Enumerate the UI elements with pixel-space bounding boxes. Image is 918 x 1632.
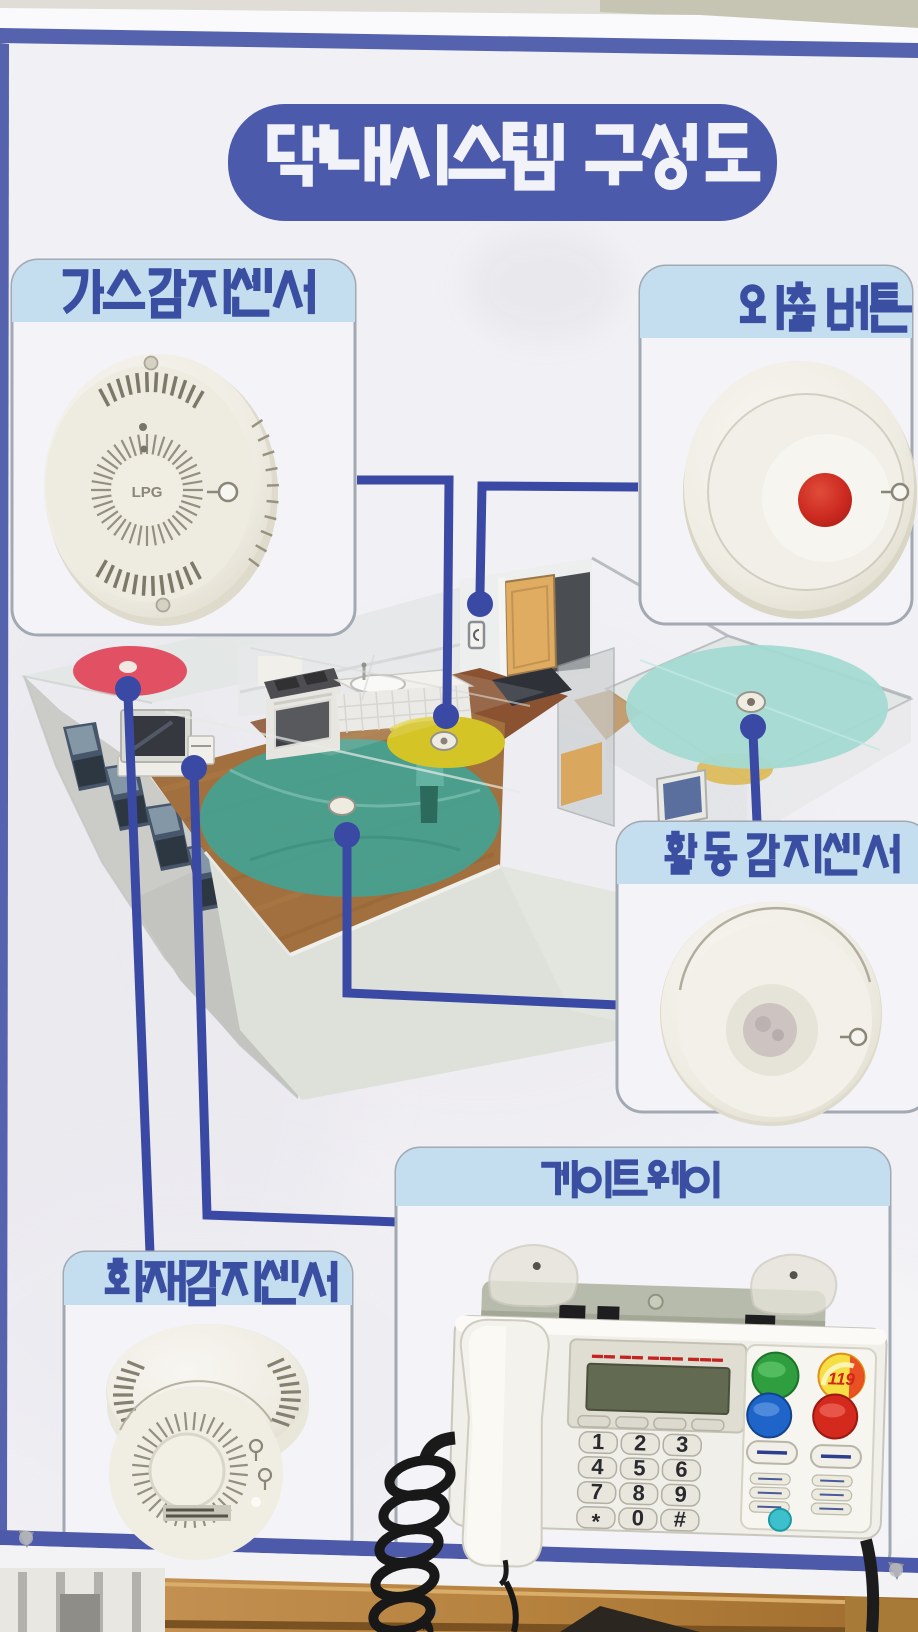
svg-text:6: 6: [675, 1457, 688, 1482]
svg-text:0: 0: [631, 1505, 644, 1530]
svg-text:7: 7: [590, 1479, 603, 1504]
svg-text:*: *: [591, 1509, 601, 1534]
svg-text:119: 119: [828, 1369, 856, 1389]
svg-text:LPG: LPG: [132, 484, 163, 501]
svg-text:9: 9: [674, 1482, 687, 1507]
svg-text:#: #: [673, 1506, 686, 1531]
svg-text:8: 8: [632, 1480, 645, 1505]
svg-text:2: 2: [634, 1430, 647, 1455]
svg-text:5: 5: [633, 1455, 646, 1480]
svg-text:3: 3: [676, 1432, 689, 1457]
svg-text:4: 4: [591, 1454, 605, 1479]
svg-text:1: 1: [592, 1429, 605, 1454]
